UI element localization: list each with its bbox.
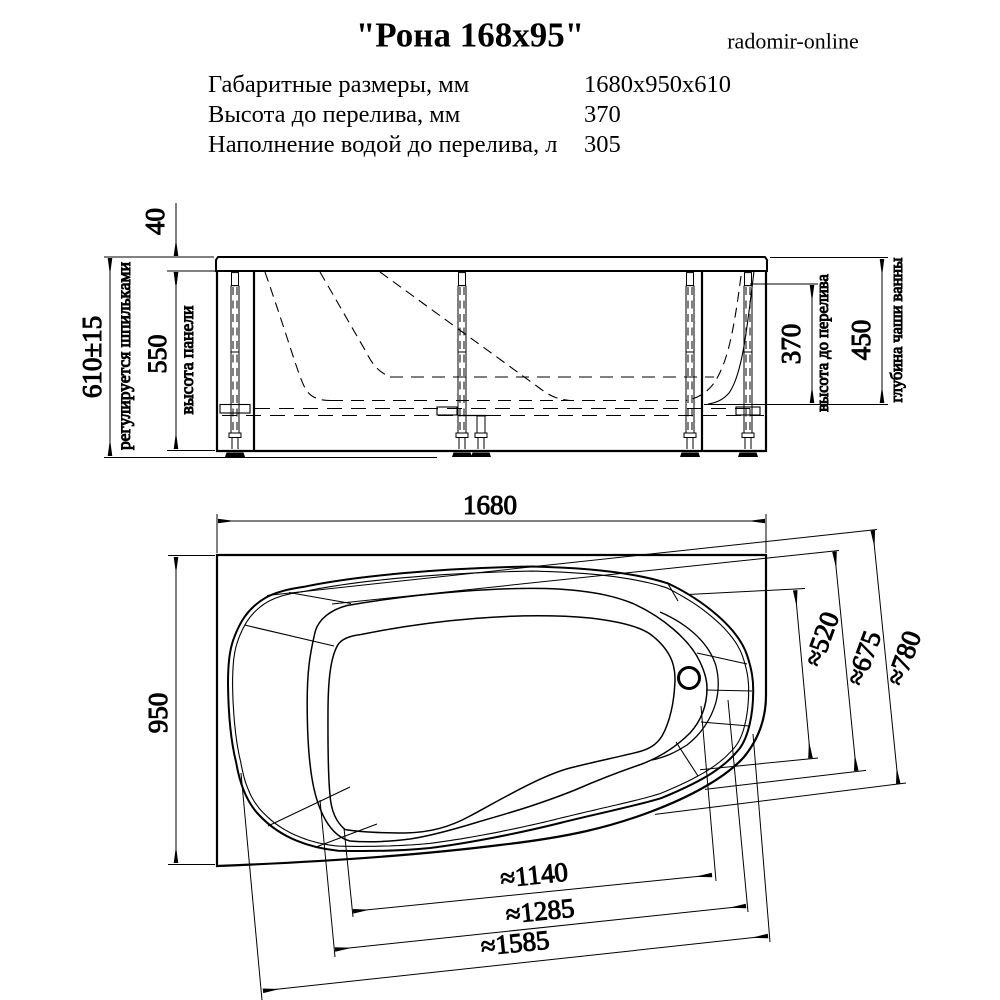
svg-text:radomir-online: radomir-online bbox=[727, 29, 859, 54]
svg-text:610±15: 610±15 bbox=[77, 316, 107, 398]
svg-text:1680х950х610: 1680х950х610 bbox=[584, 71, 731, 98]
svg-text:370: 370 bbox=[584, 101, 621, 128]
svg-text:550: 550 bbox=[143, 335, 172, 374]
svg-text:глубина чаши ванны: глубина чаши ванны bbox=[887, 258, 906, 403]
svg-text:950: 950 bbox=[143, 693, 173, 734]
svg-text:1680: 1680 bbox=[463, 490, 517, 520]
svg-text:Высота до перелива, мм: Высота до перелива, мм bbox=[208, 101, 460, 128]
svg-text:регулируется шпильками: регулируется шпильками bbox=[114, 262, 134, 450]
svg-text:высота панели: высота панели bbox=[177, 306, 197, 415]
svg-text:450: 450 bbox=[846, 320, 876, 361]
svg-text:305: 305 bbox=[584, 131, 621, 158]
svg-text:Наполнение водой до перелива,: Наполнение водой до перелива, л bbox=[208, 131, 558, 158]
svg-text:370: 370 bbox=[776, 324, 806, 365]
svg-text:40: 40 bbox=[140, 208, 170, 235]
svg-text:"Рона 168х95": "Рона 168х95" bbox=[356, 16, 584, 55]
svg-text:Габаритные размеры, мм: Габаритные размеры, мм bbox=[208, 71, 469, 98]
svg-text:высота до перелива: высота до перелива bbox=[813, 274, 832, 412]
